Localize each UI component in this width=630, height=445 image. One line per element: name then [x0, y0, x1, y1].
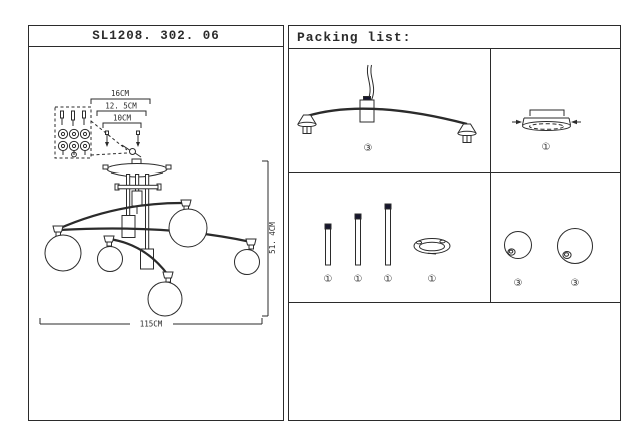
- packing-cell-canopy: ①: [490, 48, 620, 172]
- qty-arm: ③: [364, 143, 373, 154]
- qty-globe-small: ③: [514, 278, 523, 289]
- qty-globe-large: ③: [571, 278, 580, 289]
- packing-cell-arm: ③: [289, 48, 490, 172]
- qty-canopy: ①: [542, 142, 551, 153]
- chandelier-diagram: 16CM 12. 5CM 10CM: [29, 47, 281, 418]
- dim-10cm: 10CM: [113, 114, 132, 123]
- qty-rod-short: ①: [324, 274, 333, 285]
- mounting-screw-detail: [122, 145, 141, 157]
- dim-115cm: 115CM: [140, 320, 163, 329]
- packing-cell-rods: ① ① ① ①: [289, 172, 490, 302]
- technical-drawing-sheet: SL1208. 302. 06: [0, 0, 630, 445]
- model-number-title: SL1208. 302. 06: [29, 26, 283, 47]
- packing-list-panel: Packing list:: [288, 25, 621, 421]
- dim-16cm: 16CM: [111, 89, 130, 98]
- globes-drawing: ③ ③: [490, 172, 620, 302]
- qty-rod-long: ①: [384, 274, 393, 285]
- lamp-arms: [58, 203, 251, 275]
- product-drawing-panel: SL1208. 302. 06: [28, 25, 284, 421]
- packing-cell-globes: ③ ③: [490, 172, 620, 302]
- arm-assembly-drawing: ③: [289, 48, 490, 172]
- canopy-drawing: ①: [490, 48, 620, 172]
- grid-divider-horizontal-2: [289, 302, 620, 303]
- dim-51-4cm: 51. 4CM: [268, 222, 277, 254]
- packing-list-header: Packing list:: [289, 26, 620, 49]
- qty-ring: ①: [428, 274, 437, 285]
- rods-and-ring-drawing: ① ① ① ①: [289, 172, 490, 302]
- dim-12-5cm: 12. 5CM: [105, 102, 137, 111]
- qty-rod-medium: ①: [354, 274, 363, 285]
